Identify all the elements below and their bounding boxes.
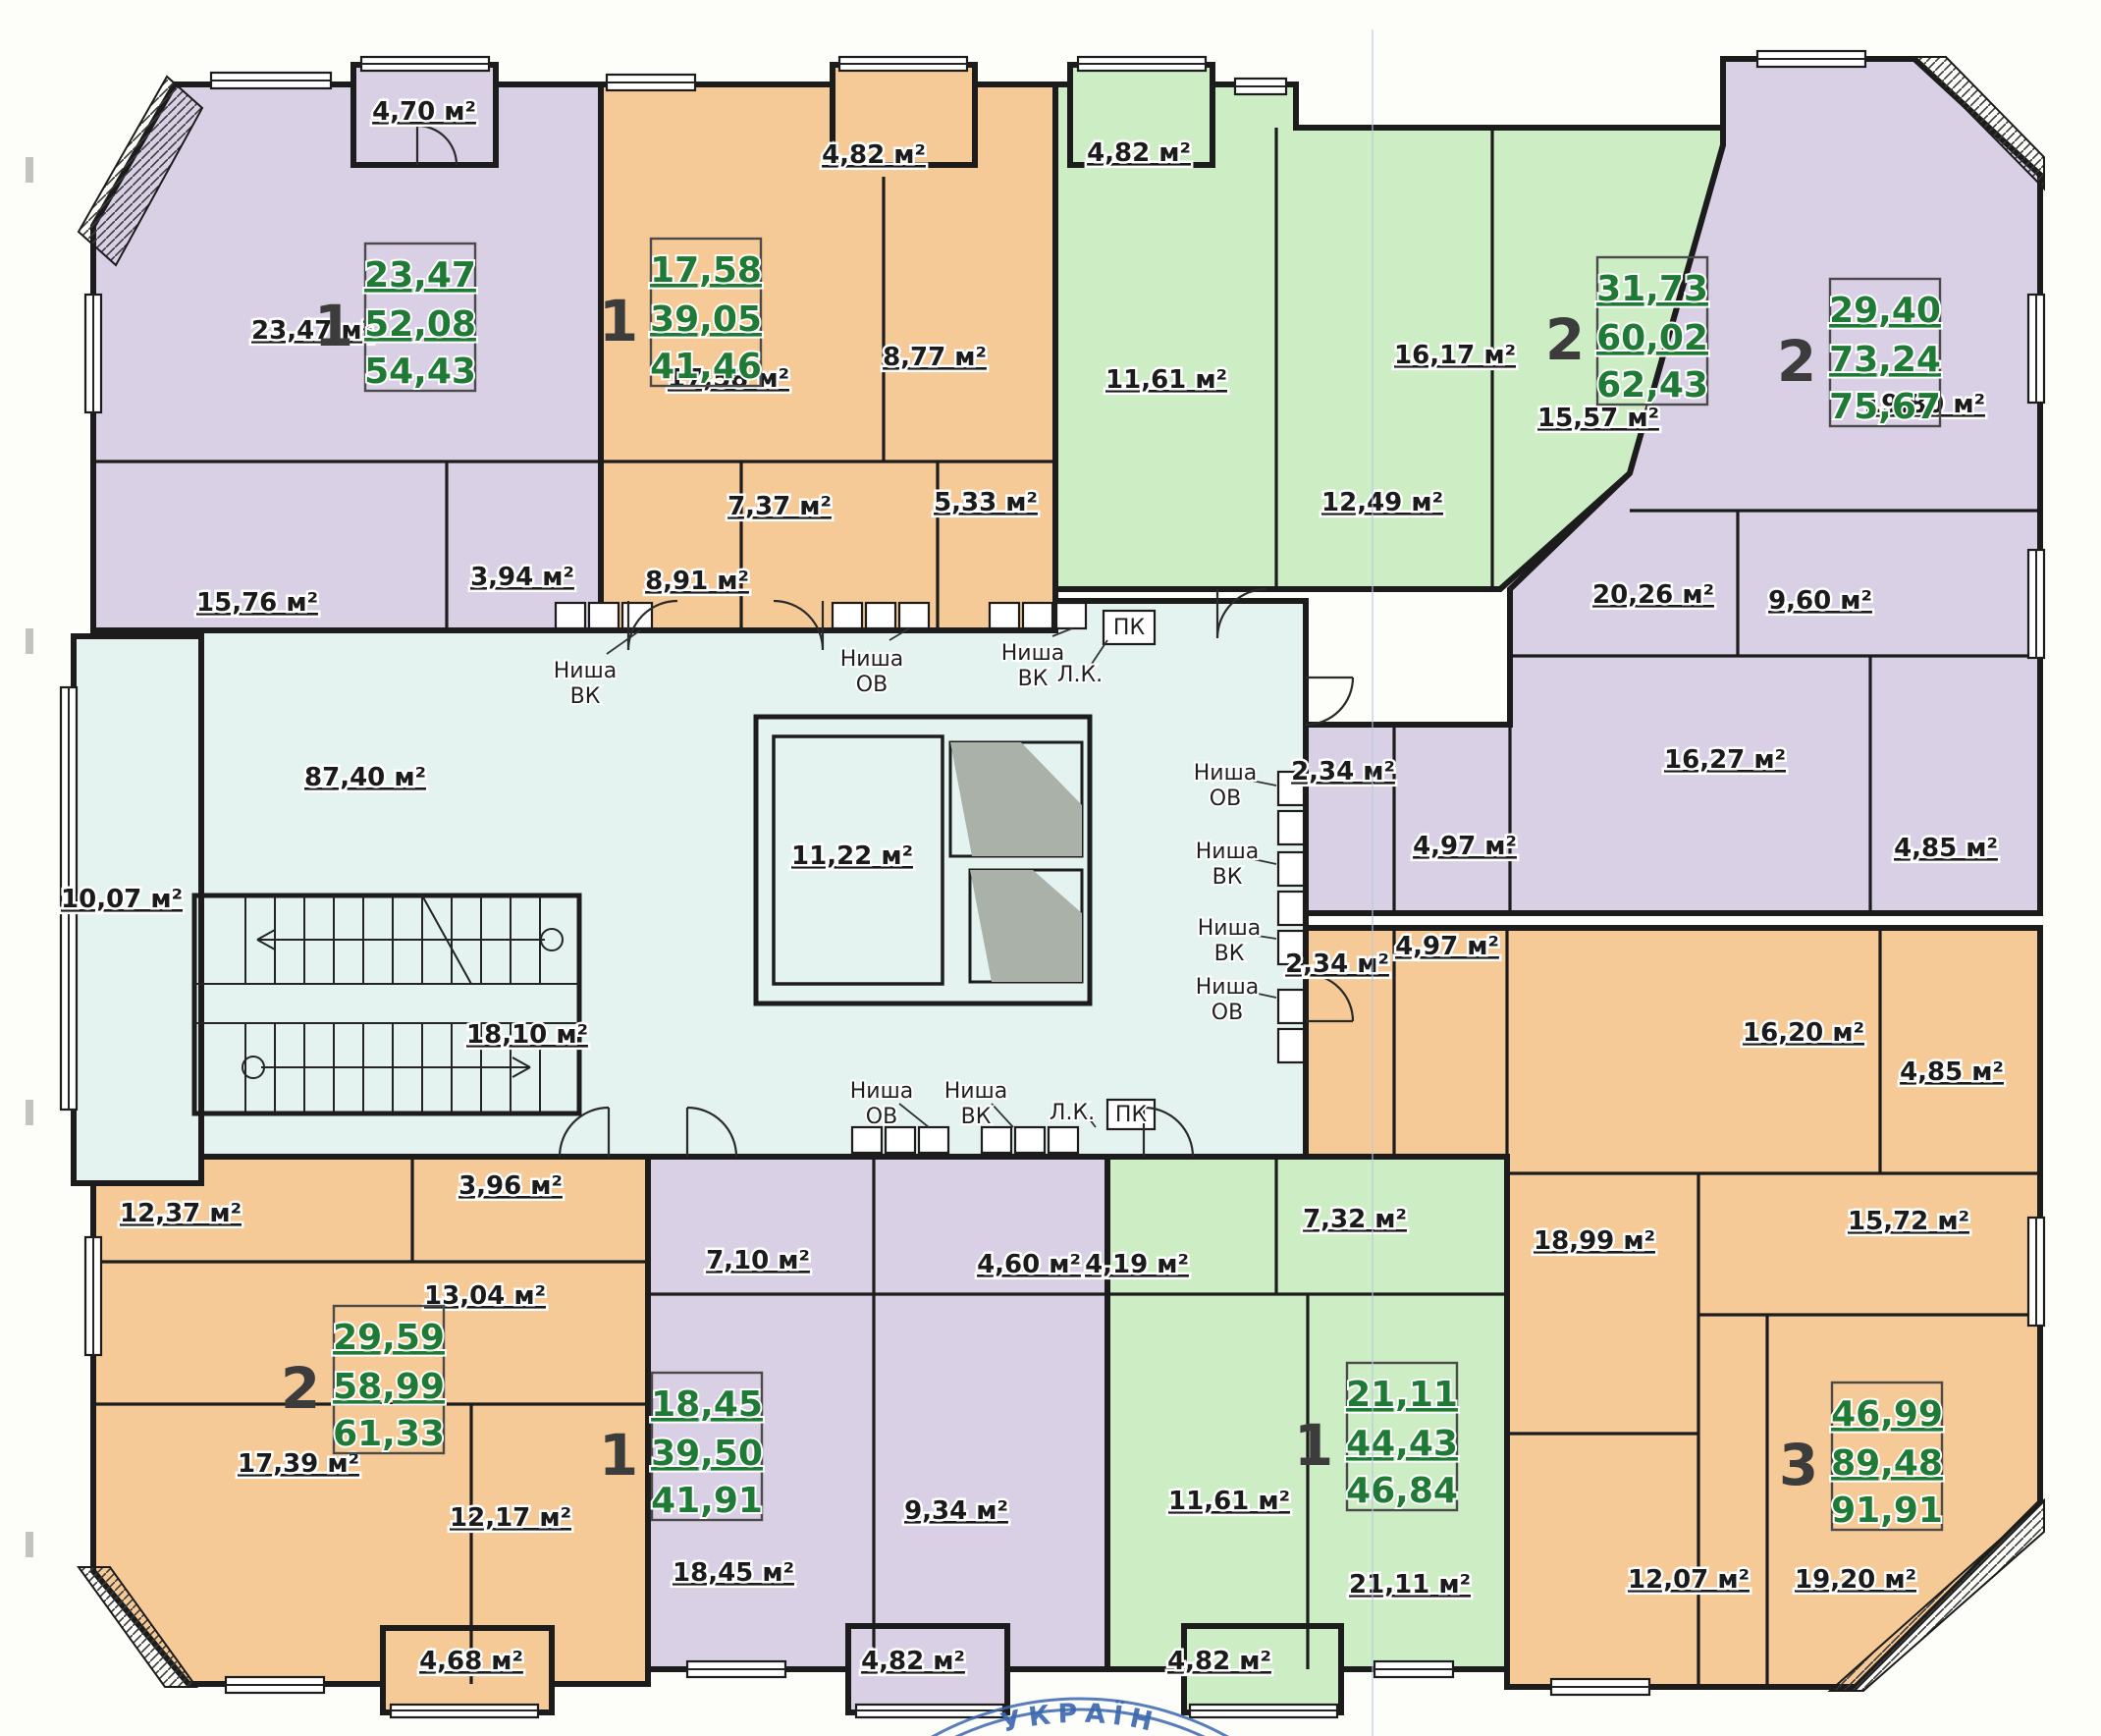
apartment-living-area: 46,99 xyxy=(1831,1394,1943,1435)
room-label: 12,49 м² xyxy=(1321,488,1443,517)
room-label: 7,37 м² xyxy=(727,492,832,521)
room-label: 87,40 м² xyxy=(304,763,426,792)
room-label: 4,82 м² xyxy=(1167,1647,1271,1676)
service-label-lk: Л.К. xyxy=(1050,1101,1095,1125)
room-label: 7,10 м² xyxy=(706,1246,810,1275)
room-label: 7,32 м² xyxy=(1303,1205,1407,1234)
room-label: 16,17 м² xyxy=(1394,341,1516,370)
apartment-area: 44,43 xyxy=(1346,1424,1458,1464)
room-label: 18,99 м² xyxy=(1534,1226,1655,1256)
stamp-text: УКРАЇН xyxy=(997,1699,1161,1736)
room-label: 4,85 м² xyxy=(1900,1058,2004,1087)
apartment-total-area: 46,84 xyxy=(1346,1471,1458,1511)
room-label: 4,60 м² xyxy=(977,1250,1081,1279)
floor-plan-canvas: 4,70 м² 23,47 м² 15,76 м² 3,94 м² 8,91 м… xyxy=(0,0,2101,1736)
apartment-rooms-count: 2 xyxy=(281,1355,320,1422)
apartment-area: 39,05 xyxy=(650,299,762,340)
service-label-lk: Л.К. xyxy=(1057,663,1103,687)
room-label: 23,47 м² xyxy=(251,316,373,346)
room-label: 4,68 м² xyxy=(419,1647,523,1676)
apartment-total-area: 61,33 xyxy=(333,1414,445,1454)
room-label: 18,10 м² xyxy=(466,1020,588,1050)
room-label: 4,97 м² xyxy=(1413,832,1517,861)
room-label: 9,34 м² xyxy=(904,1496,1008,1526)
room-label: 9,60 м² xyxy=(1768,586,1872,616)
apartment-rooms-count: 1 xyxy=(599,1422,638,1489)
apartment-living-area: 18,45 xyxy=(651,1384,763,1425)
apartment-area: 52,08 xyxy=(364,304,476,345)
room-label: 12,17 м² xyxy=(450,1503,571,1533)
room-label: 3,96 м² xyxy=(458,1171,563,1201)
apartment-total-area: 41,91 xyxy=(651,1481,763,1521)
room-label: 12,37 м² xyxy=(120,1199,242,1228)
room-label: 11,22 м² xyxy=(791,841,913,871)
room-label: 4,19 м² xyxy=(1085,1250,1189,1279)
room-label: 16,27 м² xyxy=(1664,745,1786,775)
room-label: 8,91 м² xyxy=(645,567,749,596)
room-label: 16,20 м² xyxy=(1743,1018,1864,1048)
room-label: 15,76 м² xyxy=(196,588,318,618)
apartment-area: 58,99 xyxy=(333,1367,445,1407)
room-label: 8,77 м² xyxy=(883,343,987,372)
apartment-living-area: 23,47 xyxy=(364,255,476,296)
apartment-area: 73,24 xyxy=(1829,340,1941,380)
apartment-living-area: 31,73 xyxy=(1596,269,1708,309)
apartment-rooms-count: 2 xyxy=(1777,328,1816,395)
apartment-total-area: 62,43 xyxy=(1596,365,1708,406)
apartment-rooms-count: 1 xyxy=(1294,1412,1333,1479)
service-label-pk: ПК xyxy=(1113,616,1146,640)
room-label: 21,11 м² xyxy=(1349,1570,1471,1600)
room-label: 11,61 м² xyxy=(1168,1487,1290,1516)
room-label: 19,20 м² xyxy=(1795,1565,1916,1595)
apartment-area: 39,50 xyxy=(651,1434,763,1474)
apartment-total-area: 75,67 xyxy=(1829,387,1941,427)
apartment-rooms-count: 2 xyxy=(1545,306,1585,373)
apartment-area: 60,02 xyxy=(1596,318,1708,358)
apartment-living-area: 29,40 xyxy=(1829,291,1941,331)
service-label-pk: ПК xyxy=(1115,1103,1148,1127)
room-label: 4,82 м² xyxy=(822,140,926,170)
room-label: 20,26 м² xyxy=(1592,580,1714,610)
floor-plan-page: 4,70 м² 23,47 м² 15,76 м² 3,94 м² 8,91 м… xyxy=(0,0,2101,1736)
room-label: 15,72 м² xyxy=(1848,1207,1969,1236)
room-label: 3,94 м² xyxy=(470,563,574,592)
room-label: 2,34 м² xyxy=(1285,949,1389,979)
room-label: 11,61 м² xyxy=(1105,365,1227,395)
apartment-living-area: 17,58 xyxy=(650,250,762,291)
room-label: 15,57 м² xyxy=(1537,404,1659,433)
room-label: 4,97 м² xyxy=(1395,932,1499,961)
apartment-total-area: 91,91 xyxy=(1831,1491,1943,1531)
room-label: 2,34 м² xyxy=(1291,757,1395,787)
room-label: 5,33 м² xyxy=(934,488,1038,517)
apartment-area: 89,48 xyxy=(1831,1443,1943,1484)
apartment-rooms-count: 3 xyxy=(1779,1432,1818,1498)
room-label: 4,82 м² xyxy=(861,1647,965,1676)
apartment-rooms-count: 1 xyxy=(599,288,638,354)
room-label: 4,85 м² xyxy=(1894,834,1998,863)
room-label: 10,07 м² xyxy=(61,885,183,914)
apartment-rooms-count: 1 xyxy=(314,293,353,359)
room-label: 12,07 м² xyxy=(1628,1565,1750,1595)
apartment-living-area: 29,59 xyxy=(333,1318,445,1358)
room-label: 18,45 м² xyxy=(673,1558,794,1588)
apartment-total-area: 54,43 xyxy=(364,352,476,392)
apartment-total-area: 41,46 xyxy=(650,347,762,387)
apartment-living-area: 21,11 xyxy=(1346,1375,1458,1415)
room-label: 4,70 м² xyxy=(372,97,476,127)
room-label: 4,82 м² xyxy=(1087,138,1191,168)
